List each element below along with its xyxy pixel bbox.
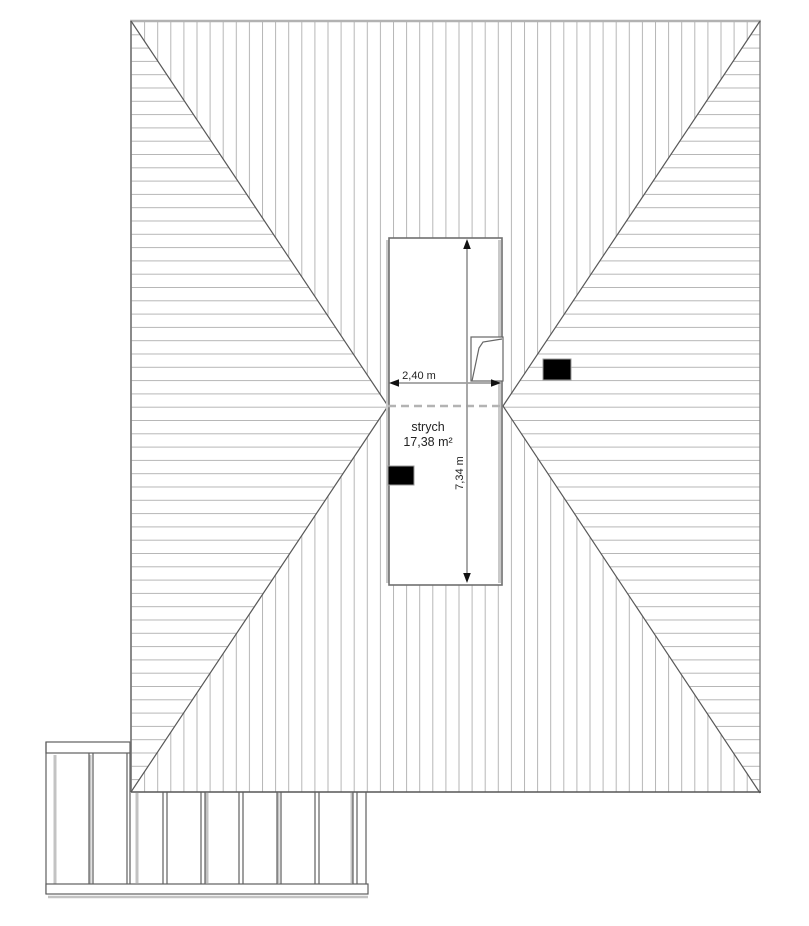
width-dimension-label: 2,40 m <box>402 370 436 382</box>
height-dimension-label: 7,34 m <box>454 456 466 490</box>
pergola-top-rail <box>46 742 130 753</box>
roof-hatch-window <box>471 337 503 381</box>
chimney-right <box>543 359 571 380</box>
room-name-label: strych <box>411 420 444 434</box>
attic-opening <box>388 238 503 585</box>
attic-floor-area <box>389 238 502 585</box>
roof-plan-drawing: 2,40 m 7,34 m strych 17,38 m² <box>0 0 809 926</box>
room-area-label: 17,38 m² <box>403 435 452 449</box>
roof-hatch-frame <box>471 337 503 381</box>
roof-plan-page: 2,40 m 7,34 m strych 17,38 m² <box>0 0 809 926</box>
pergola-bottom-rail <box>46 884 368 894</box>
chimney-left <box>388 466 414 485</box>
